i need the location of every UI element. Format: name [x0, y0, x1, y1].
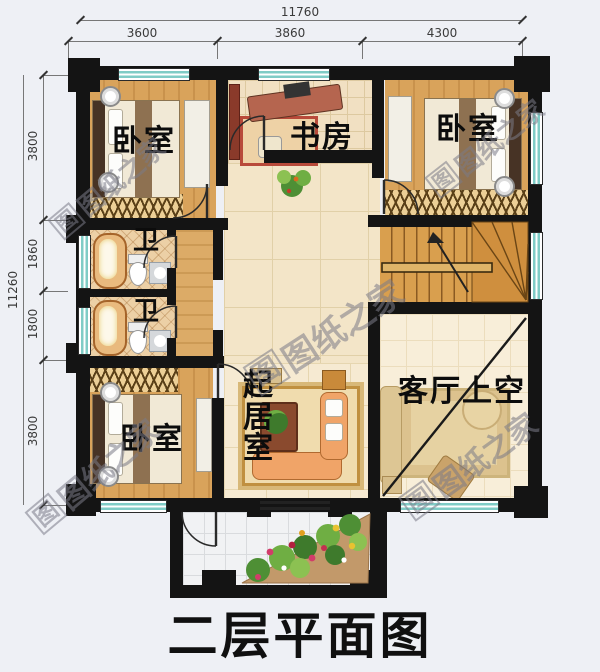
winder-stairs: [472, 222, 528, 302]
dim-left-total-label: 11260: [6, 260, 20, 320]
sofa: [320, 392, 348, 460]
drawing-title: 二层平面图: [0, 596, 600, 668]
dim-ext: [43, 360, 68, 361]
wall: [368, 215, 542, 227]
dim-left-seg-label-3: 1800: [26, 294, 40, 354]
window: [400, 500, 499, 513]
dim-ext: [43, 75, 68, 76]
dim-top-total-label: 11760: [220, 5, 380, 19]
side-table: [322, 370, 346, 390]
window: [100, 500, 167, 513]
bedside-lamp: [100, 86, 121, 107]
wall: [167, 338, 176, 356]
bookshelf: [229, 84, 240, 160]
bedside-lamp: [98, 172, 119, 193]
column-block: [202, 570, 236, 598]
room-label-study: 书房: [290, 122, 354, 154]
dim-ext: [68, 41, 69, 59]
dim-top-seg-line: [68, 41, 523, 42]
dim-ext: [43, 291, 68, 292]
wall: [167, 268, 176, 305]
window: [258, 68, 330, 81]
window: [530, 232, 543, 300]
dim-tick: [518, 15, 527, 24]
room-label-bedroom-bottom-left: 卧室: [120, 424, 184, 456]
column-block: [328, 498, 352, 517]
bedside-lamp: [100, 382, 121, 403]
dim-top-seg-label-3: 4300: [402, 26, 482, 40]
wall: [368, 302, 542, 314]
wall: [213, 222, 223, 280]
dim-left-seg-label-2: 1860: [26, 224, 40, 284]
window: [530, 112, 543, 185]
window: [78, 235, 91, 289]
dim-left-seg-label-4: 3800: [26, 401, 40, 461]
dresser: [184, 100, 210, 188]
dim-top-seg-label-2: 3860: [250, 26, 330, 40]
column-block: [514, 486, 548, 518]
room-label-bedroom-top-right: 卧室: [436, 114, 500, 146]
dim-ext: [362, 41, 363, 59]
dim-ext: [217, 41, 218, 59]
sliding-door: [260, 501, 330, 504]
room-label-void-over-living: 客厅上空: [398, 376, 526, 408]
dim-ext: [43, 220, 68, 221]
column-block: [66, 484, 96, 516]
dim-ext: [43, 505, 68, 506]
dresser: [388, 96, 412, 182]
window: [118, 68, 190, 81]
wall: [368, 314, 380, 498]
wall: [216, 80, 228, 186]
dim-top-total-line: [80, 20, 523, 21]
bathtub: [93, 300, 127, 356]
dim-left-total-line: [23, 75, 24, 505]
bedside-lamp: [494, 88, 515, 109]
wall: [212, 398, 224, 498]
room-label-bedroom-top-left: 卧室: [112, 126, 176, 158]
room-label-living-room: 起居室: [243, 370, 275, 465]
floorplan-page: { "title": "二层平面图", "watermark": { "text…: [0, 0, 600, 672]
window: [78, 307, 91, 355]
wall: [76, 356, 224, 368]
room-label-bath-1: 卫: [133, 228, 159, 255]
bedside-lamp: [98, 466, 119, 487]
hall-floor: [224, 163, 380, 363]
stairs-floor: [380, 222, 472, 302]
wall: [167, 225, 176, 237]
bedside-lamp: [494, 176, 515, 197]
room-label-bath-2: 卫: [133, 299, 159, 326]
dresser: [196, 398, 212, 472]
void-side-table: [382, 476, 402, 494]
corridor-floor: [176, 230, 213, 356]
wall: [76, 289, 176, 297]
bathtub: [93, 233, 127, 289]
column-block: [68, 58, 100, 92]
dim-top-seg-label-1: 3600: [102, 26, 182, 40]
column-block: [350, 570, 386, 598]
sliding-door: [260, 507, 330, 510]
dim-left-seg-label-1: 3800: [26, 116, 40, 176]
wall: [372, 80, 384, 178]
column-block: [514, 56, 550, 92]
